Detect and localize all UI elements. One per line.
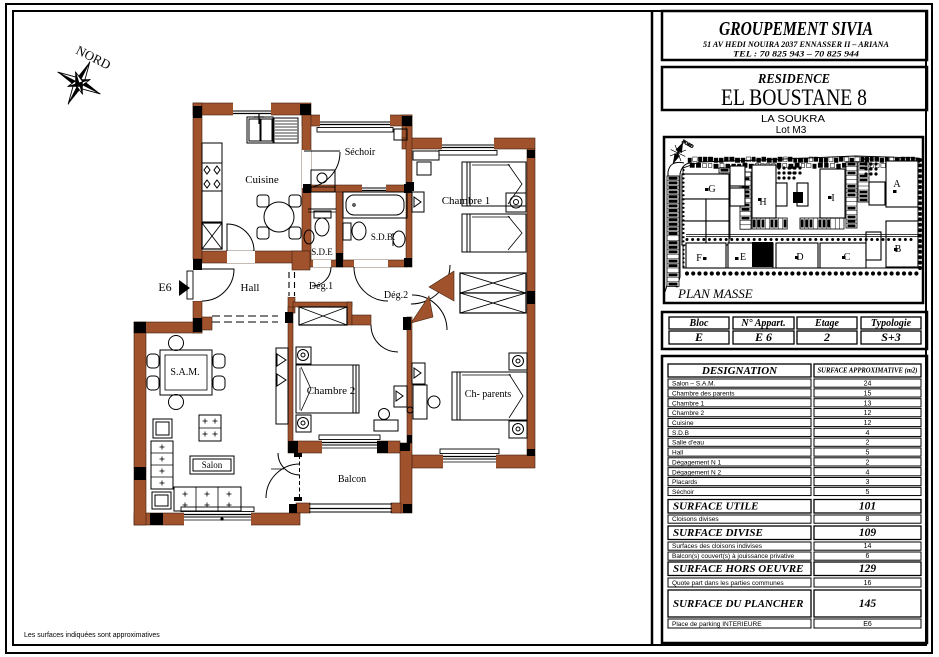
svg-text:EL BOUSTANE 8: EL BOUSTANE 8 [721, 85, 867, 110]
svg-text:Salon: Salon [202, 460, 223, 470]
svg-text:Cuisine: Cuisine [245, 174, 279, 186]
svg-text:3: 3 [866, 479, 870, 486]
svg-text:14: 14 [864, 543, 872, 550]
svg-text:145: 145 [859, 598, 877, 610]
svg-text:SURFACE DU PLANCHER: SURFACE DU PLANCHER [673, 598, 803, 610]
svg-text:SURFACE HORS OEUVRE: SURFACE HORS OEUVRE [673, 563, 803, 575]
svg-text:Dégagement N 1: Dégagement N 1 [672, 459, 722, 466]
svg-text:DESIGNATION: DESIGNATION [701, 365, 778, 377]
svg-text:24: 24 [864, 381, 872, 388]
svg-text:E: E [694, 330, 703, 344]
svg-text:Chambre des parents: Chambre des parents [672, 390, 735, 397]
svg-text:GROUPEMENT SIVIA: GROUPEMENT SIVIA [719, 18, 873, 40]
svg-text:LA SOUKRA: LA SOUKRA [761, 113, 825, 125]
svg-text:N° Appart.: N° Appart. [740, 318, 785, 329]
svg-text:Place de parking INTERIEURE: Place de parking INTERIEURE [672, 621, 762, 628]
svg-text:Séchoir: Séchoir [672, 489, 695, 496]
svg-text:G: G [708, 184, 715, 195]
svg-text:S.D.B: S.D.B [672, 430, 689, 437]
svg-text:2: 2 [866, 440, 870, 447]
svg-text:Les surfaces indiquées sont ap: Les surfaces indiquées sont approximativ… [24, 632, 160, 639]
svg-text:S+3: S+3 [881, 330, 901, 344]
svg-text:S.D.E: S.D.E [311, 247, 333, 257]
svg-text:12: 12 [864, 420, 872, 427]
svg-text:PLAN MASSE: PLAN MASSE [677, 286, 753, 301]
svg-text:TEL : 70 825 943 – 70 825 944: TEL : 70 825 943 – 70 825 944 [733, 49, 859, 59]
svg-text:Chambre 1: Chambre 1 [442, 195, 491, 207]
svg-text:I: I [831, 193, 834, 204]
svg-text:Balcon(s) couvert(s) à jouissa: Balcon(s) couvert(s) à jouissance privat… [672, 553, 794, 560]
svg-text:SURFACE APPROXIMATIVE (m2): SURFACE APPROXIMATIVE (m2) [818, 368, 918, 375]
svg-text:Dég.2: Dég.2 [384, 290, 408, 301]
svg-text:12: 12 [864, 410, 872, 417]
svg-text:2: 2 [823, 330, 830, 344]
svg-text:51 AV HEDI NOUIRA 2037 ENNASSE: 51 AV HEDI NOUIRA 2037 ENNASSER II – ARI… [703, 39, 889, 49]
svg-text:E 6: E 6 [754, 330, 772, 344]
svg-text:Dég.1: Dég.1 [309, 281, 333, 292]
svg-text:Placards: Placards [672, 479, 698, 486]
svg-text:13: 13 [864, 400, 872, 407]
svg-text:4: 4 [866, 430, 870, 437]
svg-text:101: 101 [859, 501, 876, 513]
svg-text:Cuisine: Cuisine [672, 420, 694, 427]
svg-text:E6: E6 [863, 621, 872, 628]
svg-text:16: 16 [864, 580, 872, 587]
svg-text:Cloisons divises: Cloisons divises [672, 516, 719, 523]
svg-text:6: 6 [866, 553, 870, 560]
svg-text:SURFACE DIVISE: SURFACE DIVISE [673, 527, 763, 539]
svg-text:E: E [740, 252, 746, 263]
svg-text:S.D.B.: S.D.B. [371, 232, 395, 242]
svg-text:RESIDENCE: RESIDENCE [757, 71, 830, 86]
svg-text:SURFACE UTILE: SURFACE UTILE [673, 501, 759, 513]
svg-text:Bloc: Bloc [689, 318, 709, 329]
svg-text:15: 15 [864, 390, 872, 397]
svg-text:2: 2 [866, 459, 870, 466]
svg-text:Lot M3: Lot M3 [776, 125, 807, 136]
svg-text:F: F [696, 253, 702, 264]
svg-text:4: 4 [866, 469, 870, 476]
svg-text:Quote part dans les parties co: Quote part dans les parties communes [672, 580, 784, 587]
svg-text:Etage: Etage [814, 318, 839, 329]
svg-text:Chambre 1: Chambre 1 [672, 400, 705, 407]
svg-text:Chambre 2: Chambre 2 [307, 385, 356, 397]
svg-text:Séchoir: Séchoir [345, 147, 376, 158]
svg-text:8: 8 [866, 516, 870, 523]
svg-text:Typologie: Typologie [871, 318, 912, 329]
svg-text:129: 129 [859, 563, 877, 575]
svg-text:5: 5 [866, 450, 870, 457]
svg-text:Ch- parents: Ch- parents [465, 389, 511, 400]
svg-text:Hall: Hall [672, 450, 684, 457]
svg-text:E6: E6 [158, 280, 171, 294]
svg-text:A: A [893, 179, 901, 190]
svg-text:Dégagement N 2: Dégagement N 2 [672, 469, 722, 476]
svg-text:Surfaces des cloisons indiv: Surfaces des cloisons indivises [672, 543, 763, 550]
svg-text:Balcon: Balcon [338, 474, 366, 485]
svg-text:5: 5 [866, 489, 870, 496]
svg-text:Salon – S.A.M.: Salon – S.A.M. [672, 381, 716, 388]
svg-text:109: 109 [859, 527, 877, 539]
svg-text:Salle d'eau: Salle d'eau [672, 440, 704, 447]
svg-text:S.A.M.: S.A.M. [170, 367, 199, 378]
svg-text:Hall: Hall [241, 282, 260, 294]
svg-text:Chambre 2: Chambre 2 [672, 410, 705, 417]
